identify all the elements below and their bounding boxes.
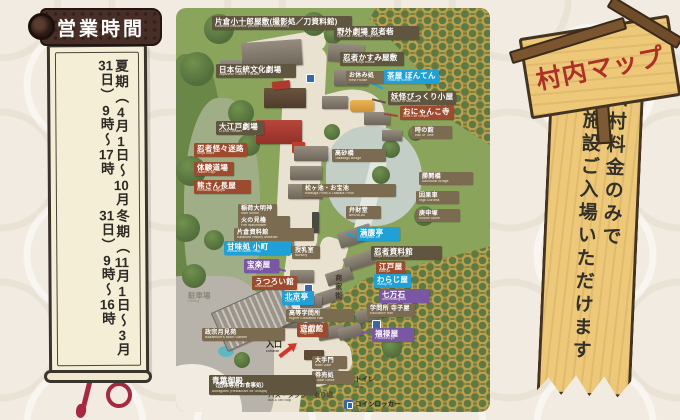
map-label: 時の館Hall of Time [412, 126, 452, 139]
hours-summer: 夏期（4月1日～10月31日）9時～17時 [67, 59, 128, 209]
map-label: 青葉御殿（団体専用お食事処）Aobagoten (Restaurant for … [209, 375, 316, 395]
scroll-top-roll: 営業時間 [40, 8, 162, 46]
scroll-tassel-loop [106, 382, 132, 408]
map-label: 高等学問所Higher Education Hall [286, 309, 354, 322]
map-label: お休み処Rest House [346, 71, 385, 84]
map-label: 北京亭Pekin-Tei [282, 291, 314, 305]
map-label: 片倉資料館Katakura History Museum [234, 228, 314, 241]
map-label: 大江戸劇場O-Edo Theater [216, 121, 264, 135]
map-label: 満腹亭Manpuku-Tei [357, 227, 400, 241]
map-label: 松ヶ池・お宝池Matsuga Pond & Otakara Pond [302, 184, 396, 197]
scroll-knob [28, 13, 55, 40]
map-label: 学問所 寺子屋Education Hall [367, 304, 415, 317]
merchant-street-label: 商家街 [334, 274, 342, 301]
map-label: 政宗月見苑Masamune's Moon Garden [202, 328, 285, 341]
map-label: 大手門Main Gate [312, 356, 347, 369]
business-hours-title: 営業時間 [57, 14, 145, 41]
map-label: 因果車Inga Guruma [416, 191, 459, 204]
map-label: 弁財堂Benzai-do [346, 206, 381, 219]
map-label: 庚申塚Koshin Stone [416, 209, 460, 222]
map-label: 授乳室Nursery [292, 246, 320, 259]
map-label: 体験道場Taiken Dojo [194, 162, 234, 176]
map-label: 片倉小十郎屋敷(撮影処／刀資料館)Katakura Residence (Stu… [212, 16, 352, 30]
map-label: 忍者怪々迷路Ninja Maze [194, 143, 247, 157]
admission-note: 入村料金のみで 全施設ご入場いただけます [551, 86, 631, 365]
scroll-body: 夏期（4月1日～10月31日）9時～17時 冬期（11月1日～3月31日）9時～… [47, 44, 149, 375]
map-label: 熊さん長屋Kumasan Nagaya [194, 180, 251, 194]
map-label: わらじ屋Waraji-Ya [374, 274, 411, 288]
map-label: 日本伝統文化劇場Japanese Culture Theater [216, 64, 296, 78]
page: { "hours_scroll": { "title": "営業時間", "li… [0, 0, 680, 420]
map-label: おにゃんこ寺Cute Cat Temple [400, 106, 454, 120]
coin-locker-icon [344, 400, 353, 409]
legend-coin-locker: コインロッカーCoin Locker [344, 393, 401, 412]
map-label: 七万石Shichimangoku [379, 289, 429, 303]
map-label: 遊戯館Yugi-kan [297, 323, 328, 337]
map-label: 高砂橋Takasago Bridge [332, 149, 386, 162]
map-label: 福禄屋Fukuroku-ya [372, 328, 414, 342]
toilet-icon [306, 74, 315, 83]
scroll-tassel-end [75, 403, 87, 419]
scroll-bottom-bar [44, 370, 152, 383]
village-map-sign: 入村料金のみで 全施設ご入場いただけます 村内マップ [500, 0, 680, 420]
business-hours-scroll: 夏期（4月1日～10月31日）9時～17時 冬期（11月1日～3月31日）9時～… [28, 6, 168, 414]
map-label: うつろい館Utsuroi-kan [252, 276, 297, 290]
map-label: 忍者かすみ屋敷Kasumi Ninja House [340, 52, 404, 66]
map-label: 野外劇場 忍者砦Open-air Theater Ninja Fort [334, 26, 419, 40]
map-label: 茶屋 ぼんてんTeashop Bonten [384, 70, 439, 84]
map-label: 勝鬨橋Kachidoki Bridge [419, 172, 473, 185]
map-label: 妖怪びっくり小屋House of Monsters [388, 91, 456, 105]
map-label: 忍者資料館Ninja Resource Center [371, 246, 442, 260]
parking-label: 駐車場Parking [188, 292, 211, 307]
map-label: 宝楽屋Horaku-ya [244, 259, 279, 273]
map-label: 券売処Ticket Office [312, 371, 354, 384]
hours-winter: 冬期（11月1日～3月31日）9時～16時 [68, 209, 129, 359]
village-map-image: 入口Entrance 商家街 駐車場Parking バス・タクシー乗り場Bus … [176, 8, 490, 412]
map-label: 火の見櫓Fire Watchtower [238, 216, 290, 229]
business-hours-text: 夏期（4月1日～10月31日）9時～17時 冬期（11月1日～3月31日）9時～… [58, 59, 138, 360]
map-label: 稲荷大明神Inari Shrine [238, 204, 277, 217]
map-label: 甘味処 小町Komachi Sweet Shop [224, 241, 291, 255]
